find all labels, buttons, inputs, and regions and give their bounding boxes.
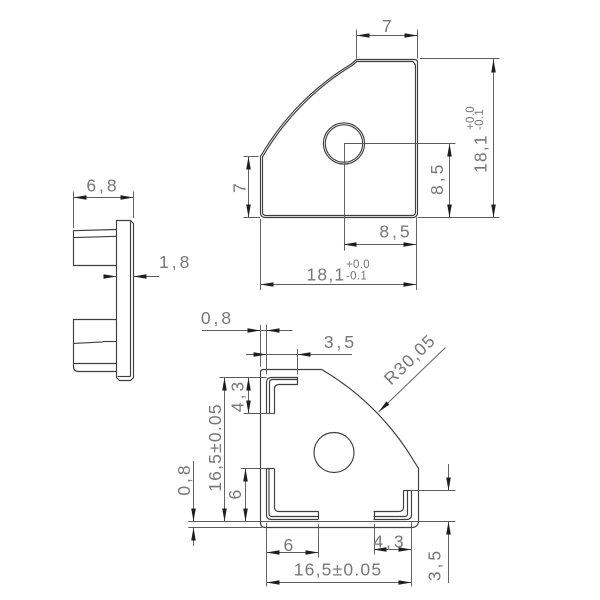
svg-text:3,5: 3,5: [324, 332, 357, 352]
svg-text:7: 7: [230, 182, 250, 193]
svg-text:0,8: 0,8: [201, 308, 234, 328]
svg-text:18,1: 18,1: [307, 265, 346, 285]
svg-text:16,5±0.05: 16,5±0.05: [294, 560, 383, 580]
svg-text:3,5: 3,5: [425, 548, 445, 581]
svg-text:16,5±0.05: 16,5±0.05: [205, 403, 225, 492]
svg-text:18,1: 18,1: [471, 134, 491, 173]
svg-text:4,3: 4,3: [227, 379, 247, 412]
svg-text:-0.1: -0.1: [474, 109, 486, 130]
svg-text:8,5: 8,5: [427, 162, 447, 195]
svg-text:6: 6: [225, 489, 245, 500]
svg-text:8,5: 8,5: [379, 222, 412, 242]
svg-text:6: 6: [284, 535, 295, 555]
svg-text:4,3: 4,3: [373, 532, 406, 552]
svg-text:R30,05: R30,05: [380, 330, 440, 389]
svg-text:7: 7: [382, 16, 393, 36]
svg-text:0,8: 0,8: [174, 462, 194, 495]
svg-text:1,8: 1,8: [159, 252, 192, 272]
svg-text:-0.1: -0.1: [346, 271, 367, 283]
svg-text:6,8: 6,8: [86, 176, 119, 196]
svg-text:+0.0: +0.0: [346, 259, 370, 271]
